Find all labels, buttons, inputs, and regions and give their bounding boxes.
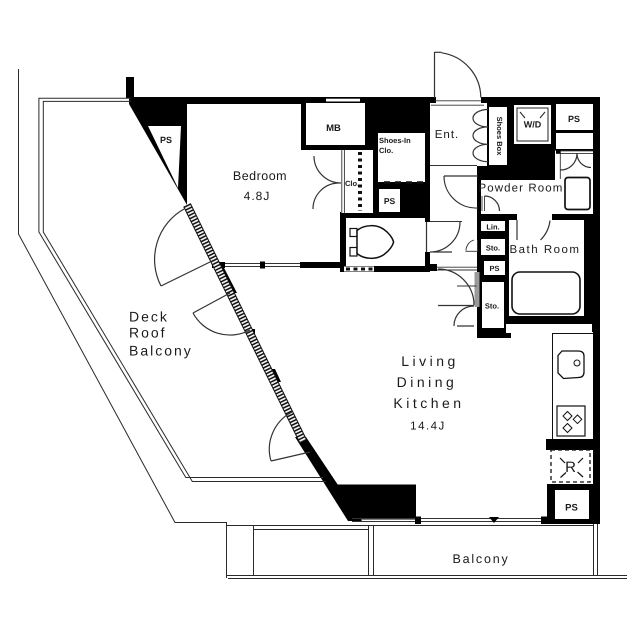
svg-text:Bedroom: Bedroom — [233, 169, 287, 183]
svg-text:Living: Living — [401, 353, 459, 369]
svg-text:Clo.: Clo. — [345, 179, 359, 188]
svg-text:Shoes-In: Shoes-In — [379, 136, 411, 145]
svg-text:Lin.: Lin. — [486, 223, 499, 232]
svg-text:14.4J: 14.4J — [410, 421, 446, 433]
svg-text:Sto.: Sto. — [486, 244, 500, 253]
svg-text:PS: PS — [568, 114, 580, 124]
svg-text:Kitchen: Kitchen — [393, 395, 464, 411]
svg-text:4.8J: 4.8J — [244, 189, 271, 203]
svg-text:R: R — [565, 459, 576, 476]
svg-text:PS: PS — [384, 196, 396, 206]
svg-text:Dining: Dining — [397, 374, 458, 390]
svg-text:Roof: Roof — [129, 325, 167, 341]
svg-text:Ent.: Ent. — [435, 129, 459, 141]
svg-text:Sto.: Sto. — [485, 302, 499, 311]
svg-text:PS: PS — [160, 135, 172, 145]
svg-text:MB: MB — [326, 123, 341, 134]
svg-text:Bath Room: Bath Room — [509, 244, 580, 256]
svg-text:Balcony: Balcony — [452, 552, 509, 566]
svg-text:Deck: Deck — [129, 309, 169, 325]
svg-text:Balcony: Balcony — [129, 343, 193, 359]
svg-text:PS: PS — [489, 264, 499, 273]
svg-text:Clo.: Clo. — [379, 146, 393, 155]
svg-text:W/D: W/D — [524, 120, 542, 130]
svg-text:Shoes Box: Shoes Box — [495, 117, 504, 157]
svg-text:PS: PS — [565, 503, 578, 514]
svg-text:Powder Room: Powder Room — [479, 183, 564, 195]
